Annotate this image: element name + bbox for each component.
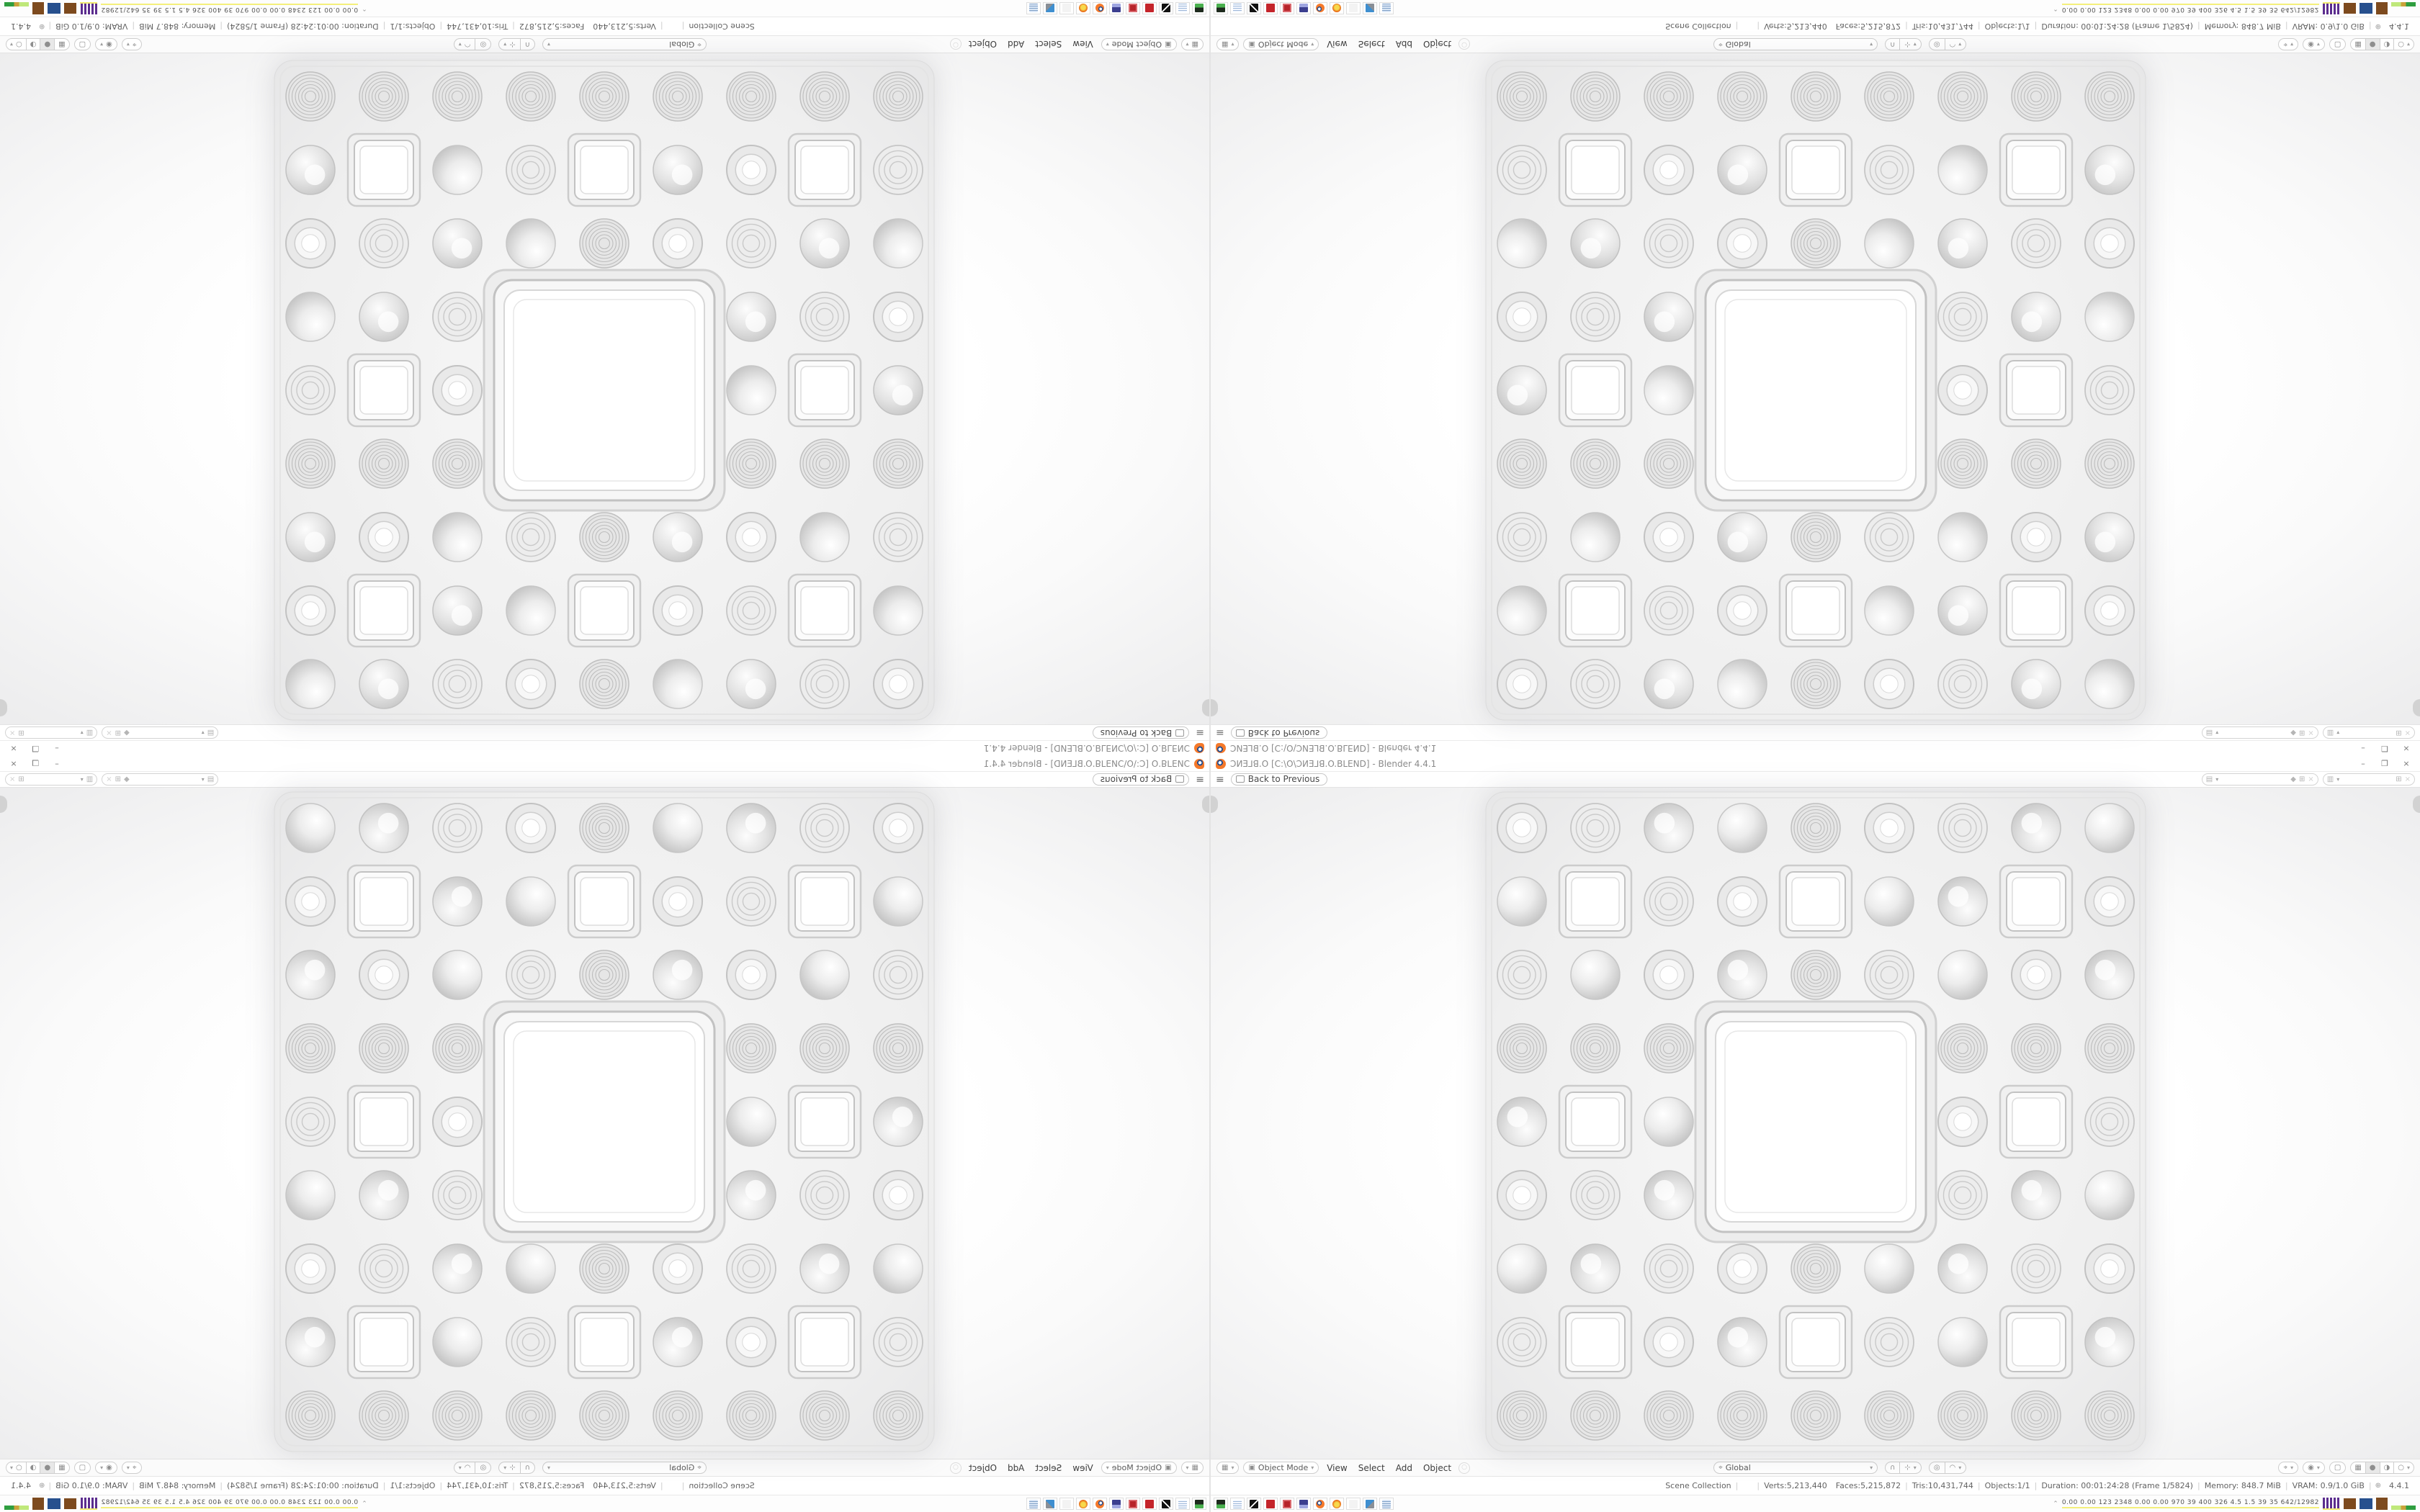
falloff-dropdown[interactable]: ◠ ▾ <box>454 38 475 50</box>
status-version: 4.4.1 <box>2385 1481 2414 1490</box>
xray-icon: ▢ <box>79 1464 86 1472</box>
viewport-3d[interactable] <box>1211 788 2420 1459</box>
taskbar-notepad-icon[interactable] <box>1175 2 1190 14</box>
material-preview-icon: ◑ <box>30 1464 37 1472</box>
tray-expand-chevron-icon[interactable]: ⌃ <box>362 1500 367 1508</box>
status-scene-collection: Scene Collection <box>684 1481 758 1490</box>
copy-viewlayer-icon[interactable]: ⊞ <box>2396 775 2401 783</box>
viewlayer-selector[interactable]: ▥ ▾ ⊞ × <box>2323 726 2415 739</box>
scene-name-field[interactable] <box>133 729 199 737</box>
shading-wireframe-button[interactable]: ▦ <box>2350 38 2365 50</box>
menu-view[interactable]: View <box>1327 1463 1347 1473</box>
window-title: ƆИƎ⅃ꓭ.O [C:\O\ƆИƎ⅃ꓭ.O.BLEND] - Blender 4… <box>1230 744 1436 754</box>
taskbar-firefox-icon[interactable] <box>1076 1498 1090 1510</box>
shading-mode-group: ▦ ● ◑ ○ ▾ <box>6 1462 70 1474</box>
snapping-cluster: ∩ ⊹ ▾ <box>1885 1462 1922 1474</box>
taskbar-blender-app-icon[interactable] <box>1313 1498 1327 1510</box>
tray-equalizer-icon[interactable] <box>80 2 97 14</box>
tray-expand-chevron-icon[interactable]: ⌃ <box>362 5 367 12</box>
overlays-dropdown[interactable]: ◉ ▾ <box>2303 1462 2325 1474</box>
taskbar-firefox-icon[interactable] <box>1330 1498 1344 1510</box>
viewport-3d[interactable] <box>0 788 1209 1459</box>
calculator-icon <box>1382 4 1391 13</box>
taskbar-gimp-icon[interactable] <box>1159 2 1173 14</box>
snap-toggle[interactable]: ∩ <box>1885 38 1900 50</box>
menger-fractal-object <box>1485 791 2146 1455</box>
viewlayer-selector[interactable]: ▥ ▾ ⊞ × <box>5 726 97 739</box>
tray-widget-brown2-icon[interactable] <box>2376 2 2388 14</box>
snap-options-dropdown[interactable]: ⊹ ▾ <box>498 1462 519 1474</box>
chevron-down-icon: ▾ <box>2407 1464 2410 1471</box>
taskbar-system-settings-icon[interactable] <box>1043 1498 1057 1510</box>
menu-select[interactable]: Select <box>1358 1463 1385 1473</box>
status-faces: Faces:5,215,872 <box>515 22 588 31</box>
transform-orientation-dropdown[interactable]: ⌖ Global ▾ <box>542 38 707 50</box>
network-status-icon[interactable]: ⊕ <box>2372 22 2385 30</box>
transform-orientation-dropdown[interactable]: ⌖ Global ▾ <box>542 1462 707 1474</box>
network-status-icon[interactable]: ⊕ <box>35 22 48 30</box>
taskbar-empty-slot-icon[interactable] <box>1059 2 1074 14</box>
falloff-dropdown[interactable]: ◠ ▾ <box>1945 38 1967 50</box>
shading-rendered-button[interactable]: ○ ▾ <box>6 38 26 50</box>
menu-view[interactable]: View <box>1327 40 1347 50</box>
overlays-icon: ◉ <box>106 1464 112 1472</box>
blender-window-bottom-right: ƆИƎ⅃ꓭ.O [C:\O\ƆИƎ⅃ꓭ.O.BLEND] - Blender 4… <box>1210 756 2420 1512</box>
toolbar-toggle-tab[interactable] <box>1211 699 1218 716</box>
shading-rendered-button[interactable]: ○ ▾ <box>2394 38 2414 50</box>
taskbar-empty-slot-icon[interactable] <box>1059 1498 1074 1510</box>
windows-taskbar: ⌃ 0.00 0.00 123 2348 0.00 0.00 970 39 40… <box>1211 1495 2420 1512</box>
taskbar-red-settings-icon[interactable] <box>1142 1498 1157 1510</box>
taskbar-media-player-icon[interactable] <box>1192 2 1206 14</box>
tray-widget-brown2-icon[interactable] <box>32 2 44 14</box>
sidebar-toggle-tab[interactable] <box>0 699 7 716</box>
object-mode-icon: ▣ <box>1248 40 1255 48</box>
copy-scene-icon[interactable]: ⊞ <box>2299 775 2305 783</box>
unlink-scene-icon[interactable]: × <box>106 729 112 737</box>
tray-widget-brown2-icon[interactable] <box>2376 1498 2388 1510</box>
empty-slot-icon <box>1349 4 1358 13</box>
close-button[interactable]: × <box>3 742 24 755</box>
scene-name-field[interactable] <box>2221 775 2287 783</box>
taskbar-gimp-icon[interactable] <box>1247 1498 1261 1510</box>
fractal-render <box>274 60 936 721</box>
taskbar-calculator-icon[interactable] <box>1379 1498 1394 1510</box>
scene-selector[interactable]: ▤ ▾ ◆ ⊞ × <box>102 726 218 739</box>
xray-toggle[interactable]: ▢ <box>2329 1462 2346 1474</box>
toolbar-toggle-tab[interactable] <box>1211 796 1218 813</box>
taskbar-red-settings-icon[interactable] <box>1142 2 1157 14</box>
taskbar-calculator-icon[interactable] <box>1026 1498 1041 1510</box>
close-button[interactable]: × <box>2396 757 2417 770</box>
taskbar-gimp-icon[interactable] <box>1247 2 1261 14</box>
taskbar-red-settings-icon[interactable] <box>1263 1498 1278 1510</box>
taskbar-system-settings-icon[interactable] <box>1043 2 1057 14</box>
status-bar: Scene Collection | | Verts:5,213,440 Fac… <box>0 17 1209 36</box>
minimize-button[interactable]: – <box>46 742 68 755</box>
editor-type-button[interactable]: ▦ ▾ <box>1216 38 1239 50</box>
pin-icon[interactable]: ◆ <box>124 729 130 737</box>
material-preview-icon: ◑ <box>2384 1464 2390 1472</box>
falloff-dropdown[interactable]: ◠ ▾ <box>1945 1462 1967 1474</box>
taskbar-system-settings-icon[interactable] <box>1363 1498 1377 1510</box>
tray-equalizer-icon[interactable] <box>2323 1498 2340 1510</box>
unlink-scene-icon[interactable]: × <box>2308 775 2313 783</box>
os-title-bar: ƆИƎ⅃ꓭ.O [C:\O\ƆИƎ⅃ꓭ.O.BLEND] - Blender 4… <box>0 740 1209 756</box>
editor-screen-icon <box>1236 775 1245 783</box>
shading-material-button[interactable]: ◑ <box>26 38 40 50</box>
viewlayer-selector[interactable]: ▥ ▾ ⊞ × <box>5 773 97 786</box>
taskbar-notepad-icon[interactable] <box>1175 1498 1190 1510</box>
gizmo-icon: ⌖ <box>133 1464 137 1472</box>
viewlayer-name-field[interactable] <box>2342 775 2393 783</box>
topbar-right-cluster: ▤ ▾ ◆ ⊞ × ▥ ▾ ⊞ × <box>5 773 218 786</box>
editor-type-button[interactable]: ▦ ▾ <box>1181 38 1204 50</box>
rendered-icon: ○ <box>2398 40 2404 48</box>
viewlayer-name-field[interactable] <box>27 775 78 783</box>
xray-toggle[interactable]: ▢ <box>74 1462 91 1474</box>
menu-add[interactable]: Add <box>1008 40 1024 50</box>
falloff-curve-icon: ◠ <box>1950 40 1956 48</box>
tray-widget-green-strip <box>4 2 29 6</box>
sidebar-toggle-tab[interactable] <box>2413 699 2420 716</box>
network-status-icon[interactable]: ⊕ <box>2372 1482 2385 1490</box>
sidebar-toggle-tab[interactable] <box>0 796 7 813</box>
desktop-kaleidoscope: ƆИƎ⅃ꓭ.O [C:\O\ƆИƎ⅃ꓭ.O.BLEND] - Blender 4… <box>0 0 2420 1512</box>
viewlayer-selector[interactable]: ▥ ▾ ⊞ × <box>2323 773 2415 786</box>
snap-toggle[interactable]: ∩ <box>520 1462 535 1474</box>
notepad-icon <box>1178 1500 1187 1508</box>
xray-toggle[interactable]: ▢ <box>2329 38 2346 50</box>
show-gizmo-dropdown[interactable]: ⌖ ▾ <box>2278 38 2298 50</box>
taskbar-red-gear-icon[interactable] <box>1126 1498 1140 1510</box>
toolbar-toggle-tab[interactable] <box>1202 796 1209 813</box>
status-verts: Verts:5,213,440 <box>1760 22 1832 31</box>
shading-wireframe-button[interactable]: ▦ <box>54 1462 69 1474</box>
taskbar-notepad-icon[interactable] <box>1230 2 1245 14</box>
taskbar-system-settings-icon[interactable] <box>1363 2 1377 14</box>
app-menu-icon[interactable]: ≡ <box>1196 728 1204 738</box>
mode-selector[interactable]: ▣ Object Mode ▾ <box>1243 1462 1319 1474</box>
transform-orientation-dropdown[interactable]: ⌖ Global ▾ <box>1713 1462 1878 1474</box>
remove-viewlayer-icon[interactable]: × <box>2405 729 2411 737</box>
viewport-header: ▦ ▾ ▣ Object Mode ▾ View Select Add Obje… <box>1211 1459 2420 1476</box>
app-menu-icon[interactable]: ≡ <box>1196 775 1204 785</box>
taskbar-media-player-icon[interactable] <box>1214 1498 1228 1510</box>
magnet-icon: ∩ <box>1890 1464 1895 1472</box>
status-vram: VRAM: 0.9/1.0 GiB <box>51 22 132 31</box>
status-vram: VRAM: 0.9/1.0 GiB <box>51 1481 132 1490</box>
chevron-down-icon: ▾ <box>81 776 84 783</box>
blender-logo-icon <box>1216 744 1226 754</box>
shading-material-button[interactable]: ◑ <box>26 1462 40 1474</box>
tray-equalizer-icon[interactable] <box>80 1498 97 1510</box>
app-menu-icon[interactable]: ≡ <box>1216 728 1224 738</box>
remove-viewlayer-icon[interactable]: × <box>2405 775 2411 783</box>
menu-view[interactable]: View <box>1072 40 1093 50</box>
mode-label: Object Mode <box>1112 1463 1162 1472</box>
taskbar-blender-app-icon[interactable] <box>1093 2 1107 14</box>
tray-widget-blue-icon[interactable] <box>2359 3 2372 14</box>
taskbar-backup-floppy-icon[interactable] <box>1296 1498 1311 1510</box>
chevron-down-icon: ▾ <box>1186 41 1189 48</box>
copy-scene-icon[interactable]: ⊞ <box>2299 729 2305 737</box>
transform-pivot-icon[interactable]: ○ <box>950 1462 962 1474</box>
tray-widget-blue-icon[interactable] <box>48 1498 60 1509</box>
chevron-down-icon: ▾ <box>503 41 506 48</box>
transform-orientation-dropdown[interactable]: ⌖ Global ▾ <box>1713 38 1878 50</box>
scene-icon: ▤ <box>2206 775 2213 783</box>
taskbar-notepad-icon[interactable] <box>1230 1498 1245 1510</box>
taskbar-backup-floppy-icon[interactable] <box>1109 2 1124 14</box>
menu-select[interactable]: Select <box>1035 1463 1062 1473</box>
blender-app-icon <box>1095 1500 1104 1508</box>
remove-viewlayer-icon[interactable]: × <box>9 729 15 737</box>
status-faces: Faces:5,215,872 <box>515 1481 588 1490</box>
falloff-curve-icon: ◠ <box>465 40 471 48</box>
copy-scene-icon[interactable]: ⊞ <box>115 775 121 783</box>
overlays-dropdown[interactable]: ◉ ▾ <box>95 1462 117 1474</box>
wireframe-icon: ▦ <box>2354 1464 2361 1472</box>
taskbar-calculator-icon[interactable] <box>1379 2 1394 14</box>
scene-selector[interactable]: ▤ ▾ ◆ ⊞ × <box>2202 773 2318 786</box>
shading-rendered-button[interactable]: ○ ▾ <box>2394 1462 2414 1474</box>
close-button[interactable]: × <box>2396 742 2417 755</box>
taskbar-red-gear-icon[interactable] <box>1280 2 1294 14</box>
chevron-down-icon: ▾ <box>100 41 103 48</box>
separator: | <box>132 1481 135 1490</box>
scene-name-field[interactable] <box>133 775 199 783</box>
menu-add[interactable]: Add <box>1396 40 1412 50</box>
window-controls: – ❐ × <box>2352 757 2417 770</box>
shading-rendered-button[interactable]: ○ ▾ <box>6 1462 26 1474</box>
taskbar-media-player-icon[interactable] <box>1214 2 1228 14</box>
taskbar-red-settings-icon[interactable] <box>1263 2 1278 14</box>
viewport-header-right: ⌖ ▾ ◉ ▾ ▢ ▦ ● <box>6 38 142 50</box>
shading-material-button[interactable]: ◑ <box>2380 38 2395 50</box>
minimize-button[interactable]: – <box>46 757 68 770</box>
scene-icon: ▤ <box>207 775 214 783</box>
blender-window-bottom-left: ƆИƎ⅃ꓭ.O [C:\O\ƆИƎ⅃ꓭ.O.BLEND] - Blender 4… <box>0 756 1210 1512</box>
editor-type-button[interactable]: ▦ ▾ <box>1216 1462 1239 1474</box>
tray-widget-brown-icon[interactable] <box>64 3 76 14</box>
transform-pivot-icon[interactable]: ○ <box>1458 39 1470 50</box>
notepad-icon <box>1178 4 1187 13</box>
back-to-previous-button[interactable]: Back to Previous <box>1231 773 1328 786</box>
snap-target-icon: ⊹ <box>509 40 515 48</box>
proportional-cluster: ◎ ◠ ▾ <box>454 38 491 50</box>
calculator-icon <box>1029 4 1038 13</box>
menu-object[interactable]: Object <box>1423 40 1451 50</box>
taskbar-gimp-icon[interactable] <box>1159 1498 1173 1510</box>
tray-widget-blue-icon[interactable] <box>2359 1498 2372 1509</box>
status-tris: Tris:10,431,744 <box>1908 22 1978 31</box>
chevron-down-icon: ▾ <box>547 1464 550 1471</box>
viewlayer-icon: ▥ <box>2327 729 2334 737</box>
taskbar-app-icons <box>1026 2 1206 14</box>
proportional-icon: ◎ <box>1934 1464 1940 1472</box>
taskbar-backup-floppy-icon[interactable] <box>1296 2 1311 14</box>
viewlayer-icon: ▥ <box>86 775 93 783</box>
tray-widget-brown-icon[interactable] <box>64 1498 76 1509</box>
separator: | <box>220 1481 223 1490</box>
tray-expand-chevron-icon[interactable]: ⌃ <box>2053 1500 2058 1508</box>
proportional-edit-toggle[interactable]: ◎ <box>1929 38 1945 50</box>
mode-label: Object Mode <box>1258 40 1308 49</box>
viewlayer-name-field[interactable] <box>27 729 78 737</box>
menu-object[interactable]: Object <box>969 40 997 50</box>
copy-scene-icon[interactable]: ⊞ <box>115 729 121 737</box>
remove-viewlayer-icon[interactable]: × <box>9 775 15 783</box>
taskbar-calculator-icon[interactable] <box>1026 2 1041 14</box>
mode-selector[interactable]: ▣ Object Mode ▾ <box>1101 38 1177 50</box>
minimize-button[interactable]: – <box>2352 757 2374 770</box>
viewport-header: ▦ ▾ ▣ Object Mode ▾ View Select Add Obje… <box>0 36 1209 53</box>
menu-add[interactable]: Add <box>1008 1463 1024 1473</box>
pin-icon[interactable]: ◆ <box>2290 729 2296 737</box>
show-gizmo-dropdown[interactable]: ⌖ ▾ <box>2278 1462 2298 1474</box>
media-player-icon <box>1216 4 1225 13</box>
restore-button[interactable]: ❐ <box>24 742 46 755</box>
xray-toggle[interactable]: ▢ <box>74 38 91 50</box>
status-memory: Memory: 848.7 MiB <box>2200 1481 2285 1490</box>
xray-icon: ▢ <box>2334 40 2341 48</box>
mode-selector[interactable]: ▣ Object Mode ▾ <box>1243 38 1319 50</box>
taskbar-blender-app-icon[interactable] <box>1313 2 1327 14</box>
transform-pivot-icon[interactable]: ○ <box>1458 1462 1470 1474</box>
minimize-button[interactable]: – <box>2352 742 2374 755</box>
scene-selector[interactable]: ▤ ▾ ◆ ⊞ × <box>2202 726 2318 739</box>
menu-view[interactable]: View <box>1072 1463 1093 1473</box>
viewport-3d[interactable] <box>1211 53 2420 724</box>
status-verts: Verts:5,213,440 <box>1760 1481 1832 1490</box>
proportional-icon: ◎ <box>480 40 486 48</box>
shading-material-button[interactable]: ◑ <box>2380 1462 2395 1474</box>
falloff-dropdown[interactable]: ◠ ▾ <box>454 1462 475 1474</box>
unlink-scene-icon[interactable]: × <box>106 775 112 783</box>
restore-button[interactable]: ❐ <box>2374 742 2396 755</box>
taskbar-red-gear-icon[interactable] <box>1126 2 1140 14</box>
taskbar-backup-floppy-icon[interactable] <box>1109 1498 1124 1510</box>
snap-toggle[interactable]: ∩ <box>520 38 535 50</box>
sidebar-toggle-tab[interactable] <box>2413 796 2420 813</box>
blender-window: ƆИƎ⅃ꓭ.O [C:\O\ƆИƎ⅃ꓭ.O.BLEND] - Blender 4… <box>1210 0 2420 756</box>
copy-viewlayer-icon[interactable]: ⊞ <box>18 729 24 737</box>
shading-solid-button[interactable]: ● <box>2366 38 2380 50</box>
menu-add[interactable]: Add <box>1396 1463 1412 1473</box>
copy-viewlayer-icon[interactable]: ⊞ <box>18 775 24 783</box>
shading-wireframe-button[interactable]: ▦ <box>2350 1462 2365 1474</box>
taskbar-blender-app-icon[interactable] <box>1093 1498 1107 1510</box>
scene-selector[interactable]: ▤ ▾ ◆ ⊞ × <box>102 773 218 786</box>
gimp-icon <box>1162 4 1170 13</box>
taskbar-firefox-icon[interactable] <box>1330 2 1344 14</box>
taskbar-empty-slot-icon[interactable] <box>1346 1498 1361 1510</box>
shading-solid-button[interactable]: ● <box>40 38 54 50</box>
snap-options-dropdown[interactable]: ⊹ ▾ <box>1900 1462 1921 1474</box>
proportional-edit-toggle[interactable]: ◎ <box>475 38 491 50</box>
tray-widget-brown-icon[interactable] <box>2344 3 2356 14</box>
menu-select[interactable]: Select <box>1358 40 1385 50</box>
transform-pivot-icon[interactable]: ○ <box>950 39 962 50</box>
empty-slot-icon <box>1349 1500 1358 1508</box>
proportional-cluster: ◎ ◠ ▾ <box>1929 1462 1966 1474</box>
red-gear-icon <box>1283 1500 1291 1508</box>
app-menu-icon[interactable]: ≡ <box>1216 775 1224 785</box>
editor-screen-icon <box>1175 775 1184 783</box>
restore-button[interactable]: ❐ <box>2374 757 2396 770</box>
close-button[interactable]: × <box>3 757 24 770</box>
overlays-dropdown[interactable]: ◉ ▾ <box>95 38 117 50</box>
taskbar-red-gear-icon[interactable] <box>1280 1498 1294 1510</box>
shading-mode-group: ▦ ● ◑ ○ ▾ <box>2350 38 2414 50</box>
taskbar-empty-slot-icon[interactable] <box>1346 2 1361 14</box>
firefox-icon <box>1079 4 1088 13</box>
unlink-scene-icon[interactable]: × <box>2308 729 2313 737</box>
pin-icon[interactable]: ◆ <box>124 775 130 783</box>
taskbar-firefox-icon[interactable] <box>1076 2 1090 14</box>
tray-widget-green-strip <box>4 1506 29 1510</box>
network-status-icon[interactable]: ⊕ <box>35 1482 48 1490</box>
show-gizmo-dropdown[interactable]: ⌖ ▾ <box>122 1462 142 1474</box>
taskbar-media-player-icon[interactable] <box>1192 1498 1206 1510</box>
system-settings-icon <box>1046 1500 1054 1508</box>
tray-expand-chevron-icon[interactable]: ⌃ <box>2053 5 2058 12</box>
menu-object[interactable]: Object <box>969 1463 997 1473</box>
viewlayer-name-field[interactable] <box>2342 729 2393 737</box>
back-to-previous-button[interactable]: Back to Previous <box>1231 726 1328 739</box>
chevron-down-icon: ▾ <box>2317 1464 2320 1471</box>
tray-widget-brown2-icon[interactable] <box>32 1498 44 1510</box>
restore-button[interactable]: ❐ <box>24 757 46 770</box>
snap-options-dropdown[interactable]: ⊹ ▾ <box>1900 38 1921 50</box>
proportional-edit-toggle[interactable]: ◎ <box>475 1462 491 1474</box>
shading-solid-button[interactable]: ● <box>2366 1462 2380 1474</box>
solid-icon: ● <box>44 40 50 48</box>
backup-floppy-icon <box>1112 4 1121 13</box>
back-to-previous-button[interactable]: Back to Previous <box>1093 773 1190 786</box>
tray-widget-brown-icon[interactable] <box>2344 1498 2356 1509</box>
shading-solid-button[interactable]: ● <box>40 1462 54 1474</box>
scene-name-field[interactable] <box>2221 729 2287 737</box>
pin-icon[interactable]: ◆ <box>2290 775 2296 783</box>
copy-viewlayer-icon[interactable]: ⊞ <box>2396 729 2401 737</box>
shading-wireframe-button[interactable]: ▦ <box>54 38 69 50</box>
firefox-icon <box>1332 4 1341 13</box>
tray-equalizer-icon[interactable] <box>2323 2 2340 14</box>
proportional-edit-toggle[interactable]: ◎ <box>1929 1462 1945 1474</box>
tray-widget-blue-icon[interactable] <box>48 3 60 14</box>
status-scene-collection: Scene Collection <box>1661 1481 1735 1490</box>
viewport-3d[interactable] <box>0 53 1209 724</box>
snap-toggle[interactable]: ∩ <box>1885 1462 1900 1474</box>
chevron-down-icon: ▾ <box>2336 729 2339 736</box>
chevron-down-icon: ▾ <box>1106 1464 1109 1471</box>
editor-type-button[interactable]: ▦ ▾ <box>1181 1462 1204 1474</box>
overlays-dropdown[interactable]: ◉ ▾ <box>2303 38 2325 50</box>
menu-object[interactable]: Object <box>1423 1463 1451 1473</box>
snap-options-dropdown[interactable]: ⊹ ▾ <box>498 38 519 50</box>
chevron-down-icon: ▾ <box>2215 729 2218 736</box>
solid-icon: ● <box>44 1464 50 1472</box>
snap-target-icon: ⊹ <box>1904 40 1910 48</box>
viewlayer-icon: ▥ <box>2327 775 2334 783</box>
toolbar-toggle-tab[interactable] <box>1202 699 1209 716</box>
back-to-previous-button[interactable]: Back to Previous <box>1093 726 1190 739</box>
mode-selector[interactable]: ▣ Object Mode ▾ <box>1101 1462 1177 1474</box>
show-gizmo-dropdown[interactable]: ⌖ ▾ <box>122 38 142 50</box>
menu-select[interactable]: Select <box>1035 40 1062 50</box>
